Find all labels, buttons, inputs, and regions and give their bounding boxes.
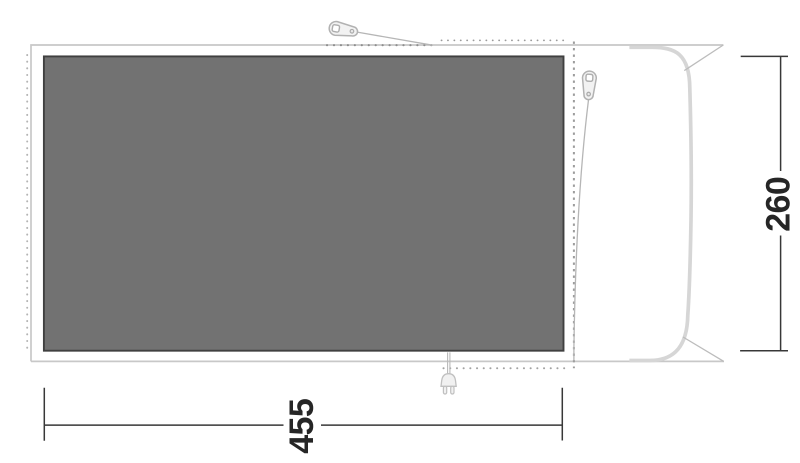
svg-text:260: 260 [759, 177, 797, 232]
svg-text:455: 455 [283, 399, 321, 454]
